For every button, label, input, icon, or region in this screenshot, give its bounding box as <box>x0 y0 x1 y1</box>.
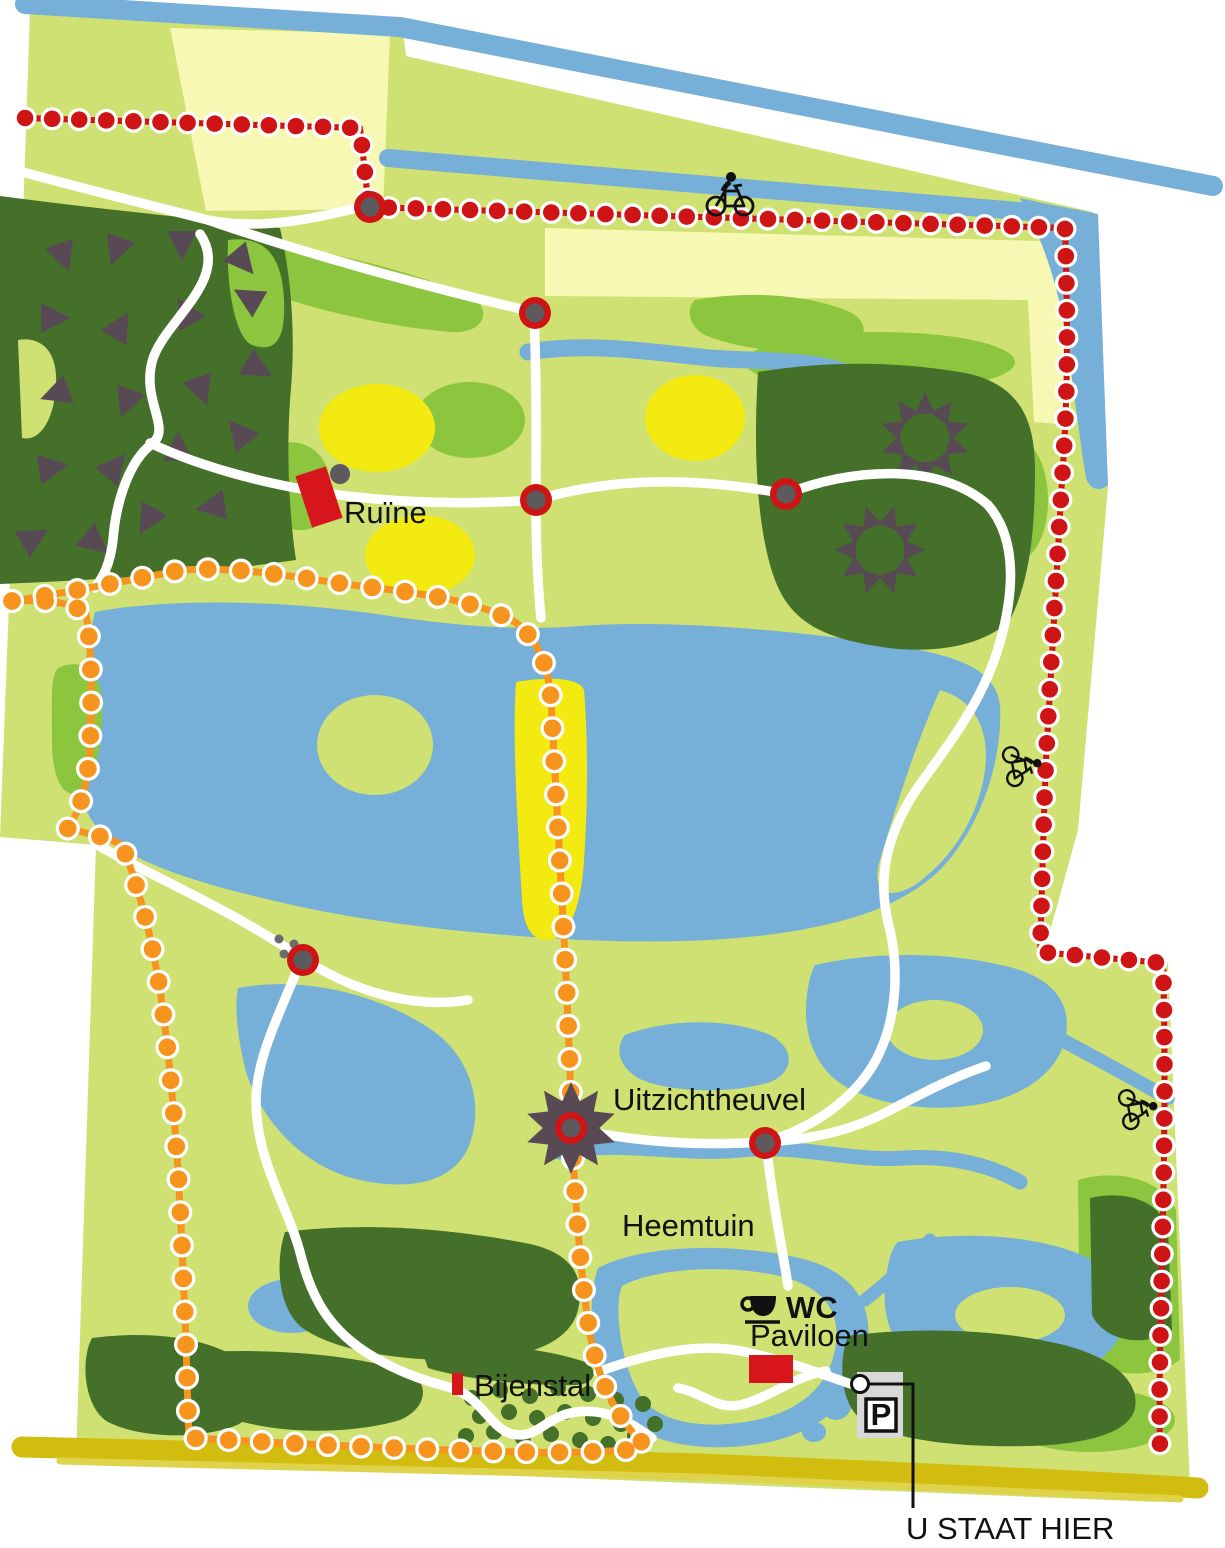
route-junction-node-icon <box>287 944 319 976</box>
label-apiary: Bijenstal <box>474 1368 591 1403</box>
route-junction-node-icon <box>749 1127 781 1159</box>
island-pond-mid-right <box>887 1000 983 1060</box>
apiary-building <box>452 1373 463 1395</box>
label-viewpoint-hill: Uitzichtheuvel <box>613 1082 806 1117</box>
park-map: P Ruïne Uitzichtheuvel Heemtuin WC Pavil… <box>0 0 1225 1548</box>
route-junction-node-icon <box>519 297 551 329</box>
route-junction-node-icon <box>520 484 552 516</box>
parking-letter: P <box>871 1397 892 1432</box>
label-heritage-garden: Heemtuin <box>622 1208 755 1243</box>
island-meadow-left <box>317 695 433 795</box>
park-map-page: P Ruïne Uitzichtheuvel Heemtuin WC Pavil… <box>0 0 1225 1548</box>
route-junction-node-icon <box>770 478 802 510</box>
yellow-ruin-upper <box>319 384 435 472</box>
label-you-are-here: U STAAT HIER <box>906 1511 1114 1546</box>
yellow-middle <box>645 375 745 461</box>
pond-mid-center <box>619 1022 788 1090</box>
label-pavilion: Paviloen <box>750 1318 869 1353</box>
pond-parking-2 <box>802 1422 826 1442</box>
footpath <box>534 312 541 618</box>
label-ruin: Ruïne <box>344 495 427 530</box>
pavilion-building <box>749 1355 793 1383</box>
route-junction-node-icon <box>354 191 386 223</box>
